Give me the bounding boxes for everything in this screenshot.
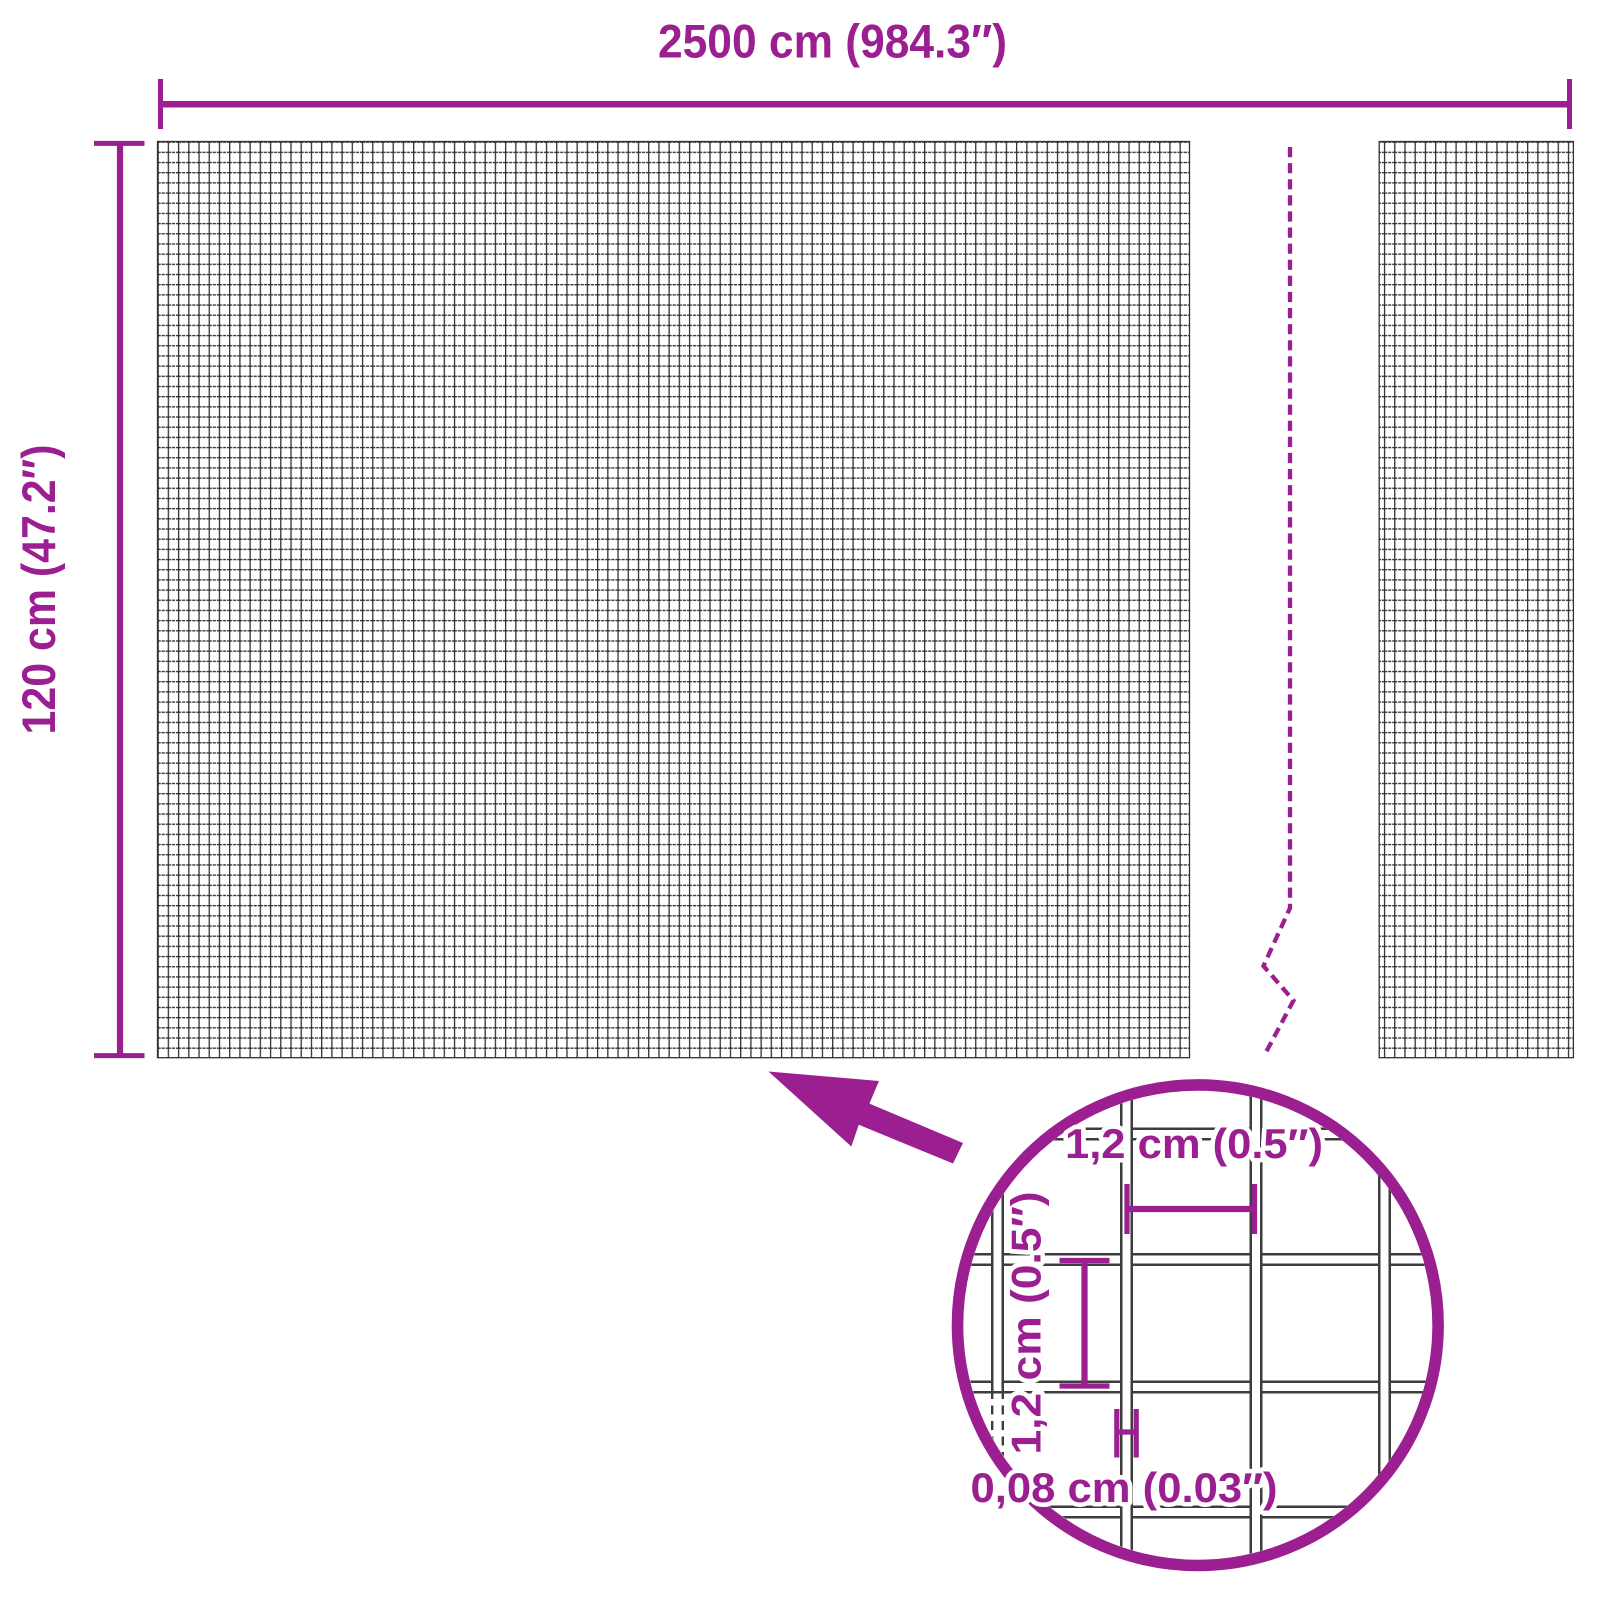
svg-text:120 cm (47.2″): 120 cm (47.2″) bbox=[12, 445, 65, 735]
svg-text:0,08 cm (0.03″): 0,08 cm (0.03″) bbox=[971, 1464, 1278, 1511]
svg-text:2500 cm (984.3″): 2500 cm (984.3″) bbox=[658, 15, 1007, 68]
svg-text:1,2 cm (0.5″): 1,2 cm (0.5″) bbox=[1065, 1120, 1323, 1167]
svg-text:1,2 cm (0.5″): 1,2 cm (0.5″) bbox=[1003, 1192, 1050, 1455]
